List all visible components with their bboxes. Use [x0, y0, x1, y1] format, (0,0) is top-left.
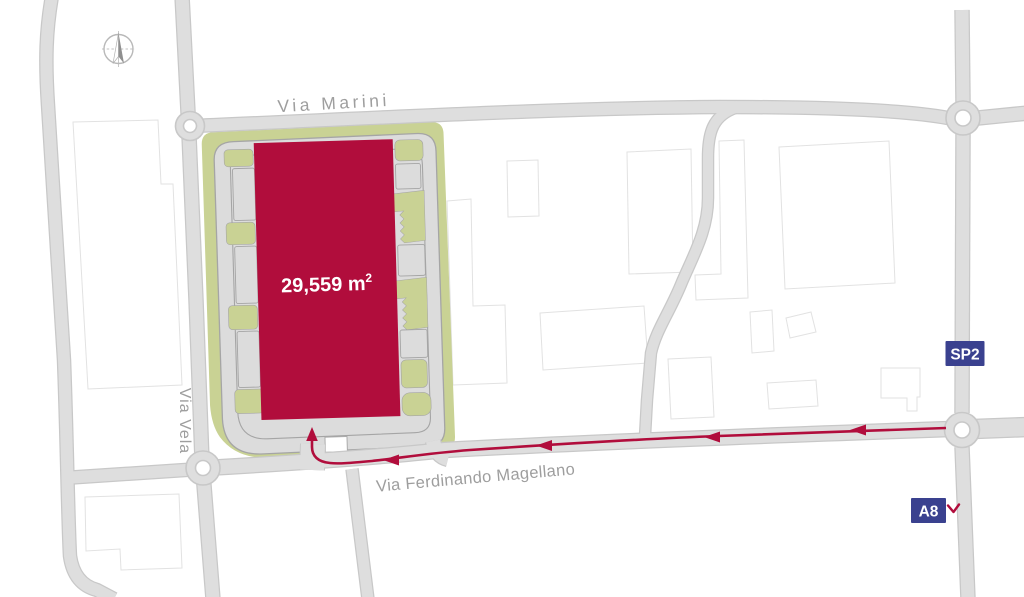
- roundabout-center: [184, 120, 197, 133]
- road-label-via-ferdinando-magellano: Via Ferdinando Magellano: [375, 460, 575, 495]
- roundabout-center: [954, 422, 970, 438]
- parking-bay: [232, 168, 255, 221]
- green-strip: [228, 305, 258, 330]
- property-site: 29,559 m2: [201, 122, 455, 460]
- site-location-map: 29,559 m2: [0, 0, 1024, 597]
- dock-bay: [398, 244, 426, 276]
- a8-badge: A8: [911, 498, 959, 523]
- parking-bay: [235, 246, 259, 304]
- green-strip: [401, 359, 428, 388]
- building-outline: [750, 310, 774, 353]
- green-strip: [226, 222, 256, 245]
- green-strip: [402, 392, 432, 416]
- building-outline: [627, 149, 693, 274]
- map-svg: 29,559 m2: [0, 0, 1024, 597]
- green-strip: [224, 149, 253, 167]
- road-magellano-east-stub: [974, 427, 1024, 429]
- building-outline: [507, 160, 539, 217]
- building-outline: [779, 141, 895, 289]
- dock-bay: [395, 163, 421, 189]
- entrance-island: [325, 437, 347, 453]
- building-outline: [73, 120, 182, 389]
- dock-bay: [400, 329, 428, 358]
- building-outline: [85, 494, 182, 570]
- sp2-badge-label: SP2: [950, 347, 979, 364]
- road-marini-east-stub: [978, 113, 1024, 118]
- building-outline: [786, 312, 816, 338]
- area-superscript: 2: [365, 271, 372, 285]
- building-outline: [447, 199, 507, 385]
- road-sp2: [962, 134, 963, 413]
- green-strip: [395, 139, 424, 161]
- a8-badge-label: A8: [919, 504, 939, 521]
- green-strip: [235, 389, 265, 414]
- compass-needle-east: [119, 33, 125, 64]
- road-north-stub: [962, 10, 963, 102]
- building-outline: [668, 357, 714, 419]
- parking-bay: [237, 331, 261, 388]
- building-outline: [540, 306, 648, 370]
- roundabout-center: [955, 110, 971, 126]
- road-network: [46, 0, 1024, 597]
- road-sp2-south: [962, 447, 968, 597]
- building-area-label: 29,559 m2: [281, 271, 373, 298]
- compass-needle-west: [113, 33, 119, 64]
- area-value: 29,559 m: [281, 273, 366, 297]
- road-fills: [46, 0, 1024, 597]
- building-outline: [881, 368, 920, 411]
- road-label-via-vela: Via Vela: [176, 388, 193, 454]
- roundabout-center: [196, 461, 211, 476]
- compass-icon: [102, 31, 135, 67]
- sp2-badge: SP2: [946, 341, 985, 366]
- building-outline: [767, 380, 818, 409]
